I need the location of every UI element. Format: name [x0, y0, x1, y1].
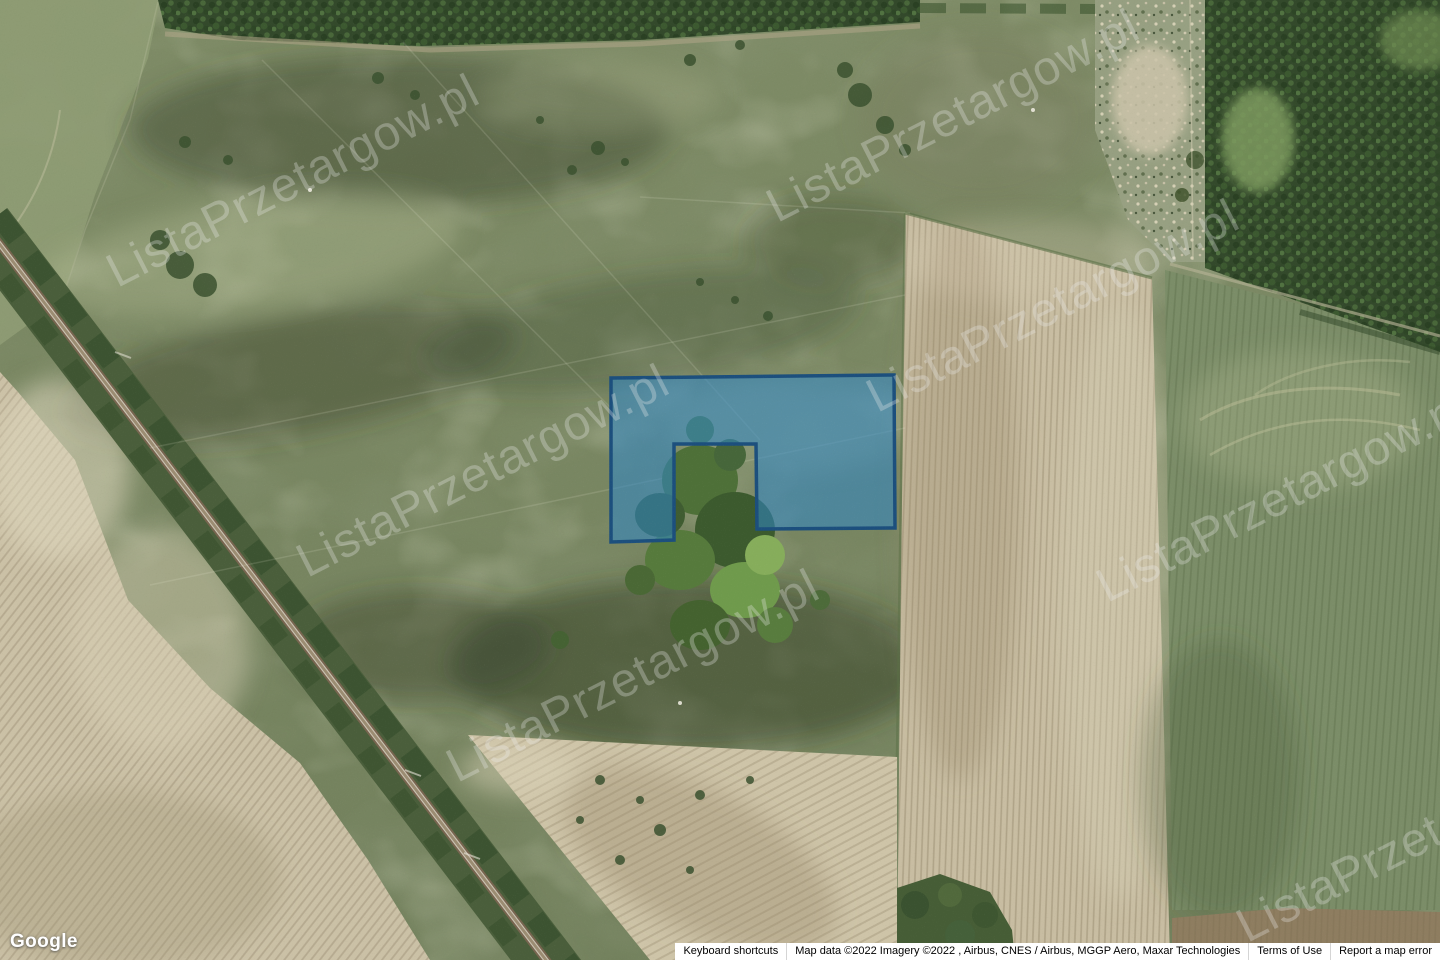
map-viewport[interactable]: ListaPrzetargow.pl ListaPrzetargow.pl Li…: [0, 0, 1440, 960]
google-logo[interactable]: Google: [10, 931, 78, 953]
terms-of-use-link[interactable]: Terms of Use: [1248, 943, 1330, 960]
attribution-bar: Keyboard shortcuts Map data ©2022 Imager…: [675, 943, 1440, 960]
map-data-attribution: Map data ©2022 Imagery ©2022 , Airbus, C…: [786, 943, 1248, 960]
keyboard-shortcuts-button[interactable]: Keyboard shortcuts: [675, 943, 786, 960]
satellite-terrain: ListaPrzetargow.pl ListaPrzetargow.pl Li…: [0, 0, 1440, 960]
report-map-error-link[interactable]: Report a map error: [1330, 943, 1440, 960]
satellite-map-image: ListaPrzetargow.pl ListaPrzetargow.pl Li…: [0, 0, 1440, 960]
